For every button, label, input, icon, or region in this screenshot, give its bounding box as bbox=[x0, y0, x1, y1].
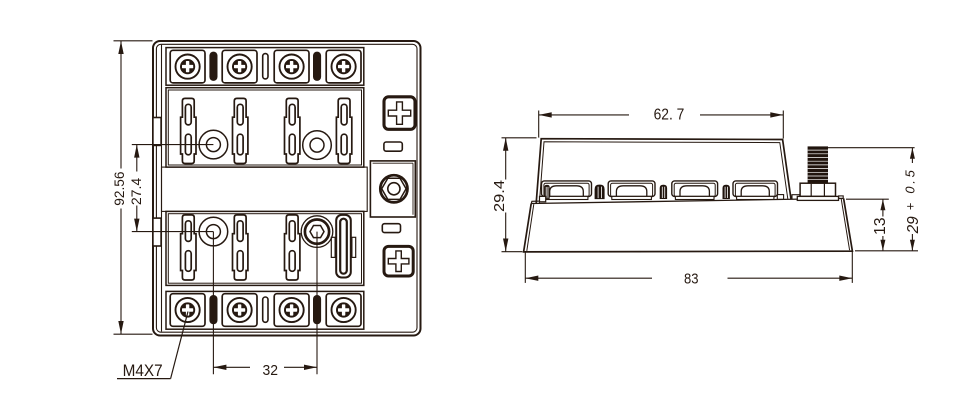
svg-text:29+ 0.5: 29+ 0.5 bbox=[903, 167, 922, 234]
svg-text:83: 83 bbox=[684, 272, 699, 288]
svg-text:M4X7: M4X7 bbox=[123, 361, 163, 380]
svg-text:29.4: 29.4 bbox=[491, 180, 508, 212]
svg-text:32: 32 bbox=[263, 362, 279, 379]
svg-text:92.56: 92.56 bbox=[112, 171, 128, 205]
svg-text:27.4: 27.4 bbox=[128, 178, 144, 206]
svg-text:62. 7: 62. 7 bbox=[654, 107, 685, 124]
svg-text:13: 13 bbox=[872, 217, 889, 235]
